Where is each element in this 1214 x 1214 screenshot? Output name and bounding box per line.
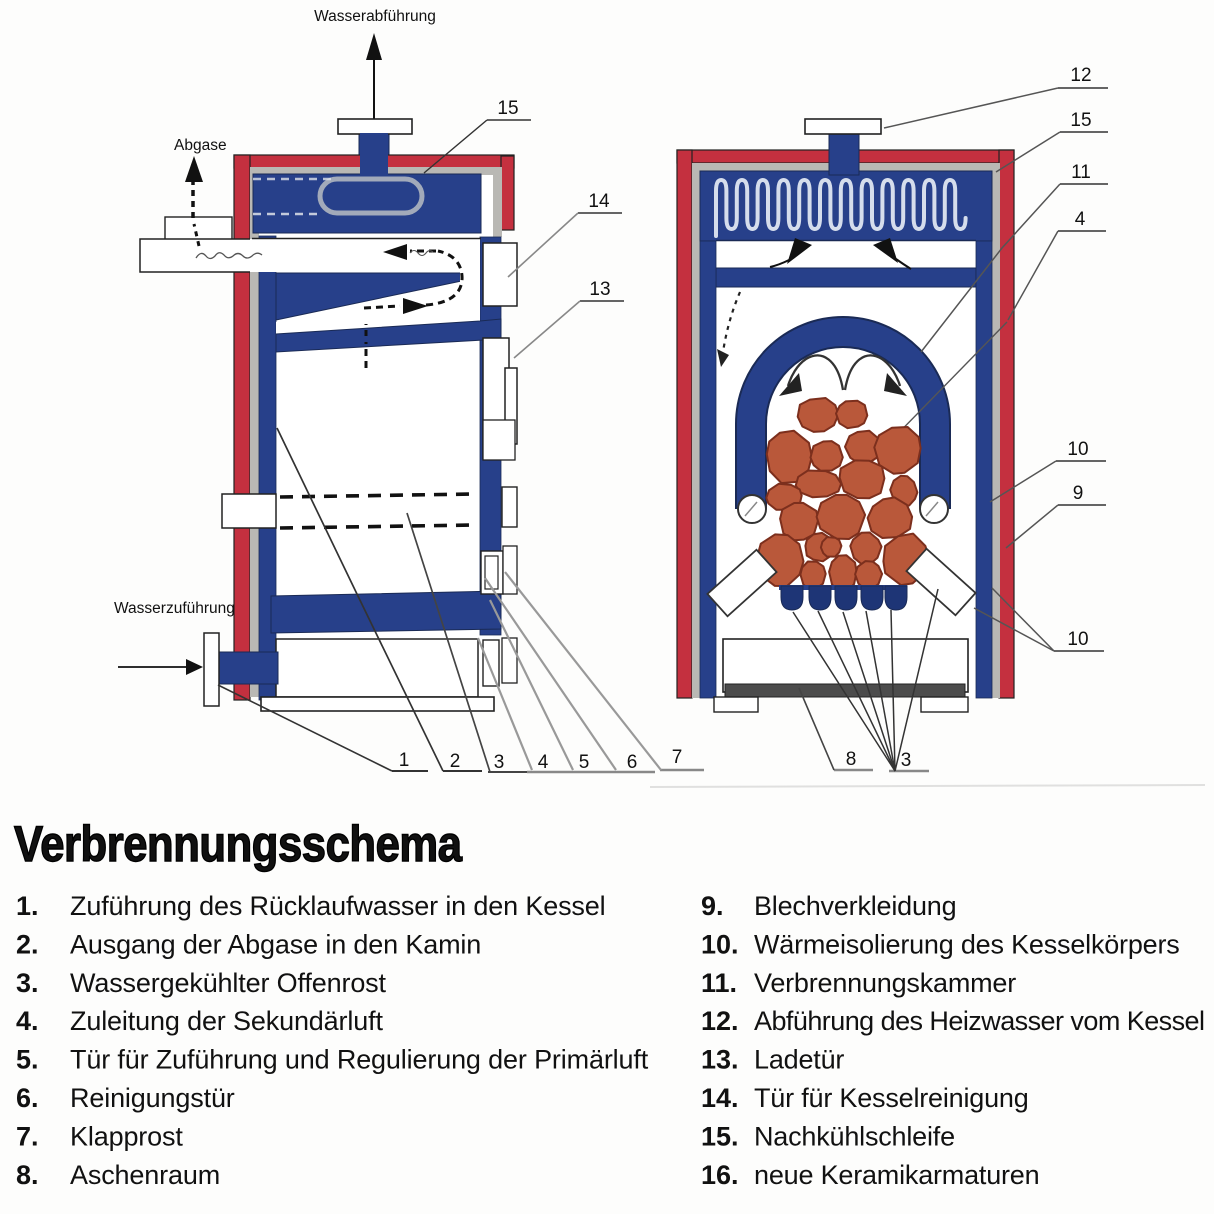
svg-text:Klapprost: Klapprost (70, 1121, 183, 1151)
svg-text:Blechverkleidung: Blechverkleidung (754, 891, 956, 921)
svg-text:Nachkühlschleife: Nachkühlschleife (754, 1121, 955, 1151)
svg-text:9: 9 (1073, 483, 1084, 504)
svg-text:2: 2 (450, 751, 461, 772)
svg-text:9.: 9. (701, 891, 724, 921)
svg-text:11: 11 (1071, 162, 1091, 183)
svg-text:12: 12 (1070, 65, 1091, 86)
svg-text:13.: 13. (701, 1045, 739, 1075)
svg-text:1.: 1. (16, 891, 39, 921)
svg-text:5: 5 (579, 752, 590, 773)
svg-text:Verbrennungsschema: Verbrennungsschema (14, 816, 463, 871)
svg-text:Zuführung des Rücklaufwasser i: Zuführung des Rücklaufwasser in den Kess… (70, 891, 606, 921)
svg-text:12.: 12. (701, 1006, 739, 1036)
svg-text:Wassergekühlter Offenrost: Wassergekühlter Offenrost (70, 968, 387, 998)
svg-text:13: 13 (589, 279, 610, 300)
svg-text:Ausgang der Abgase in den Kami: Ausgang der Abgase in den Kamin (70, 929, 481, 959)
svg-text:Wasserabführung: Wasserabführung (314, 8, 436, 25)
svg-text:Tür für Kesselreinigung: Tür für Kesselreinigung (754, 1083, 1029, 1113)
svg-text:14: 14 (588, 191, 610, 212)
svg-text:2.: 2. (16, 929, 39, 959)
svg-text:Verbrennungskammer: Verbrennungskammer (754, 968, 1016, 998)
svg-text:8: 8 (846, 749, 857, 770)
svg-text:7.: 7. (16, 1121, 39, 1151)
svg-text:Abgase: Abgase (174, 137, 227, 154)
svg-text:7: 7 (672, 747, 683, 768)
svg-text:15: 15 (1070, 110, 1091, 131)
svg-text:Ladetür: Ladetür (754, 1045, 844, 1075)
svg-text:4: 4 (538, 752, 549, 773)
svg-text:6: 6 (627, 752, 638, 773)
svg-text:11.: 11. (701, 968, 737, 998)
svg-text:15: 15 (497, 98, 518, 119)
svg-text:Wasserzuführung: Wasserzuführung (114, 600, 235, 617)
svg-text:Zuleitung der Sekundärluft: Zuleitung der Sekundärluft (70, 1006, 383, 1036)
svg-text:Wärmeisolierung des Kesselkörp: Wärmeisolierung des Kesselkörpers (754, 929, 1180, 959)
svg-text:neue Keramikarmaturen: neue Keramikarmaturen (754, 1160, 1039, 1190)
svg-text:Aschenraum: Aschenraum (70, 1160, 220, 1190)
svg-text:Abführung des Heizwasser vom K: Abführung des Heizwasser vom Kessel (754, 1006, 1204, 1036)
svg-text:14.: 14. (701, 1083, 739, 1113)
svg-text:3: 3 (494, 752, 505, 773)
svg-text:4.: 4. (16, 1006, 39, 1036)
svg-text:10: 10 (1067, 629, 1088, 650)
svg-text:16.: 16. (701, 1160, 739, 1190)
svg-text:Tür für Zuführung und Regulier: Tür für Zuführung und Regulierung der Pr… (70, 1045, 649, 1075)
svg-text:3: 3 (901, 750, 912, 771)
svg-text:6.: 6. (16, 1083, 39, 1113)
svg-text:1: 1 (399, 750, 410, 771)
svg-text:10.: 10. (701, 929, 739, 959)
svg-text:Reinigungstür: Reinigungstür (70, 1083, 235, 1113)
svg-text:3.: 3. (16, 968, 39, 998)
svg-text:10: 10 (1067, 439, 1088, 460)
svg-text:15.: 15. (701, 1121, 739, 1151)
svg-text:5.: 5. (16, 1045, 39, 1075)
svg-text:4: 4 (1075, 209, 1086, 230)
svg-text:8.: 8. (16, 1160, 39, 1190)
